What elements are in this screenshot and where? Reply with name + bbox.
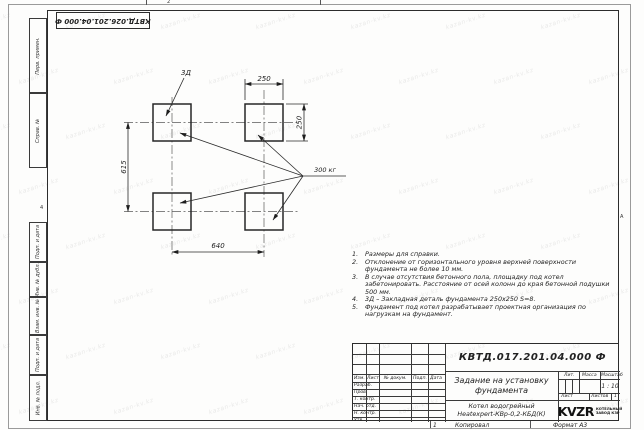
- note-item: 2.Отклонение от горизонтального уровня в…: [352, 259, 614, 274]
- row-utv: Утв.: [354, 418, 364, 423]
- row-nachotd: Нач. отд.: [354, 404, 376, 409]
- drawing-title: Задание на установку фундамента: [445, 371, 558, 400]
- bottom-sheet-number: 1: [433, 422, 437, 429]
- row-prov: Пров.: [354, 390, 367, 395]
- col-podp: Подп.: [413, 376, 427, 381]
- col-list: Лист: [367, 376, 379, 381]
- detail-label-text: 3Д: [181, 69, 191, 77]
- dim-250-right-text: 250: [296, 115, 304, 129]
- list-label: Лист: [561, 394, 573, 399]
- col-data: Дата: [430, 376, 442, 381]
- bottom-tick-2: [530, 421, 531, 428]
- doc-number: КВТД.017.201.04.000 Ф: [445, 344, 620, 371]
- center-lines: [124, 90, 299, 257]
- foundation-pads: [153, 104, 283, 230]
- load-label-text: 300 кг: [314, 166, 336, 174]
- title-block: Изм. Лист № докум. Подп. Дата Разраб. Пр…: [352, 343, 619, 421]
- dim-250-top-text: 250: [257, 75, 271, 83]
- product-name: Котел водогрейный Heatexpert-КВр-0,2-КБД…: [445, 400, 558, 422]
- masshtab-label: Масштаб: [601, 373, 623, 378]
- lit-label: Лит.: [564, 373, 575, 378]
- row-tkontr: Т. контр.: [354, 397, 375, 402]
- col-izm: Изм.: [354, 376, 365, 381]
- dim-640-text: 640: [211, 242, 225, 250]
- listov-label: Листов: [591, 394, 608, 399]
- massa-label: Масса: [582, 373, 597, 378]
- load-leader-lines: [180, 133, 346, 220]
- row-nkontr: Н. контр.: [354, 411, 376, 416]
- kvzr-logo-text: KVZR: [558, 404, 594, 419]
- drawing-sheet: kazan-kv.kzkazan-kv.kzkazan-kv.kzkazan-k…: [0, 0, 644, 430]
- note-item: 3.В случае отсутствия бетонного пола, пл…: [352, 274, 614, 297]
- notes-list: 1.Размеры для справки. 2.Отклонение от г…: [352, 251, 614, 319]
- bottom-tick-1: [430, 421, 431, 428]
- note-item: 5.Фундамент под котел разрабатывает прое…: [352, 304, 614, 319]
- listov-value: 1: [614, 394, 617, 399]
- scale-value: 1 : 10: [600, 379, 620, 393]
- copied-label: Копировал: [455, 422, 489, 429]
- dim-615-text: 615: [120, 160, 128, 174]
- format-label: Формат А3: [553, 422, 587, 429]
- kvzr-logo-subtitle: КОТЕЛЬНЫЙ ЗАВОД КЗР: [596, 407, 622, 415]
- company-logo: KVZR КОТЕЛЬНЫЙ ЗАВОД КЗР: [558, 400, 620, 422]
- col-doc: № докум.: [384, 376, 407, 381]
- detail-leader-line: [166, 78, 184, 116]
- row-razrab: Разраб.: [354, 383, 372, 388]
